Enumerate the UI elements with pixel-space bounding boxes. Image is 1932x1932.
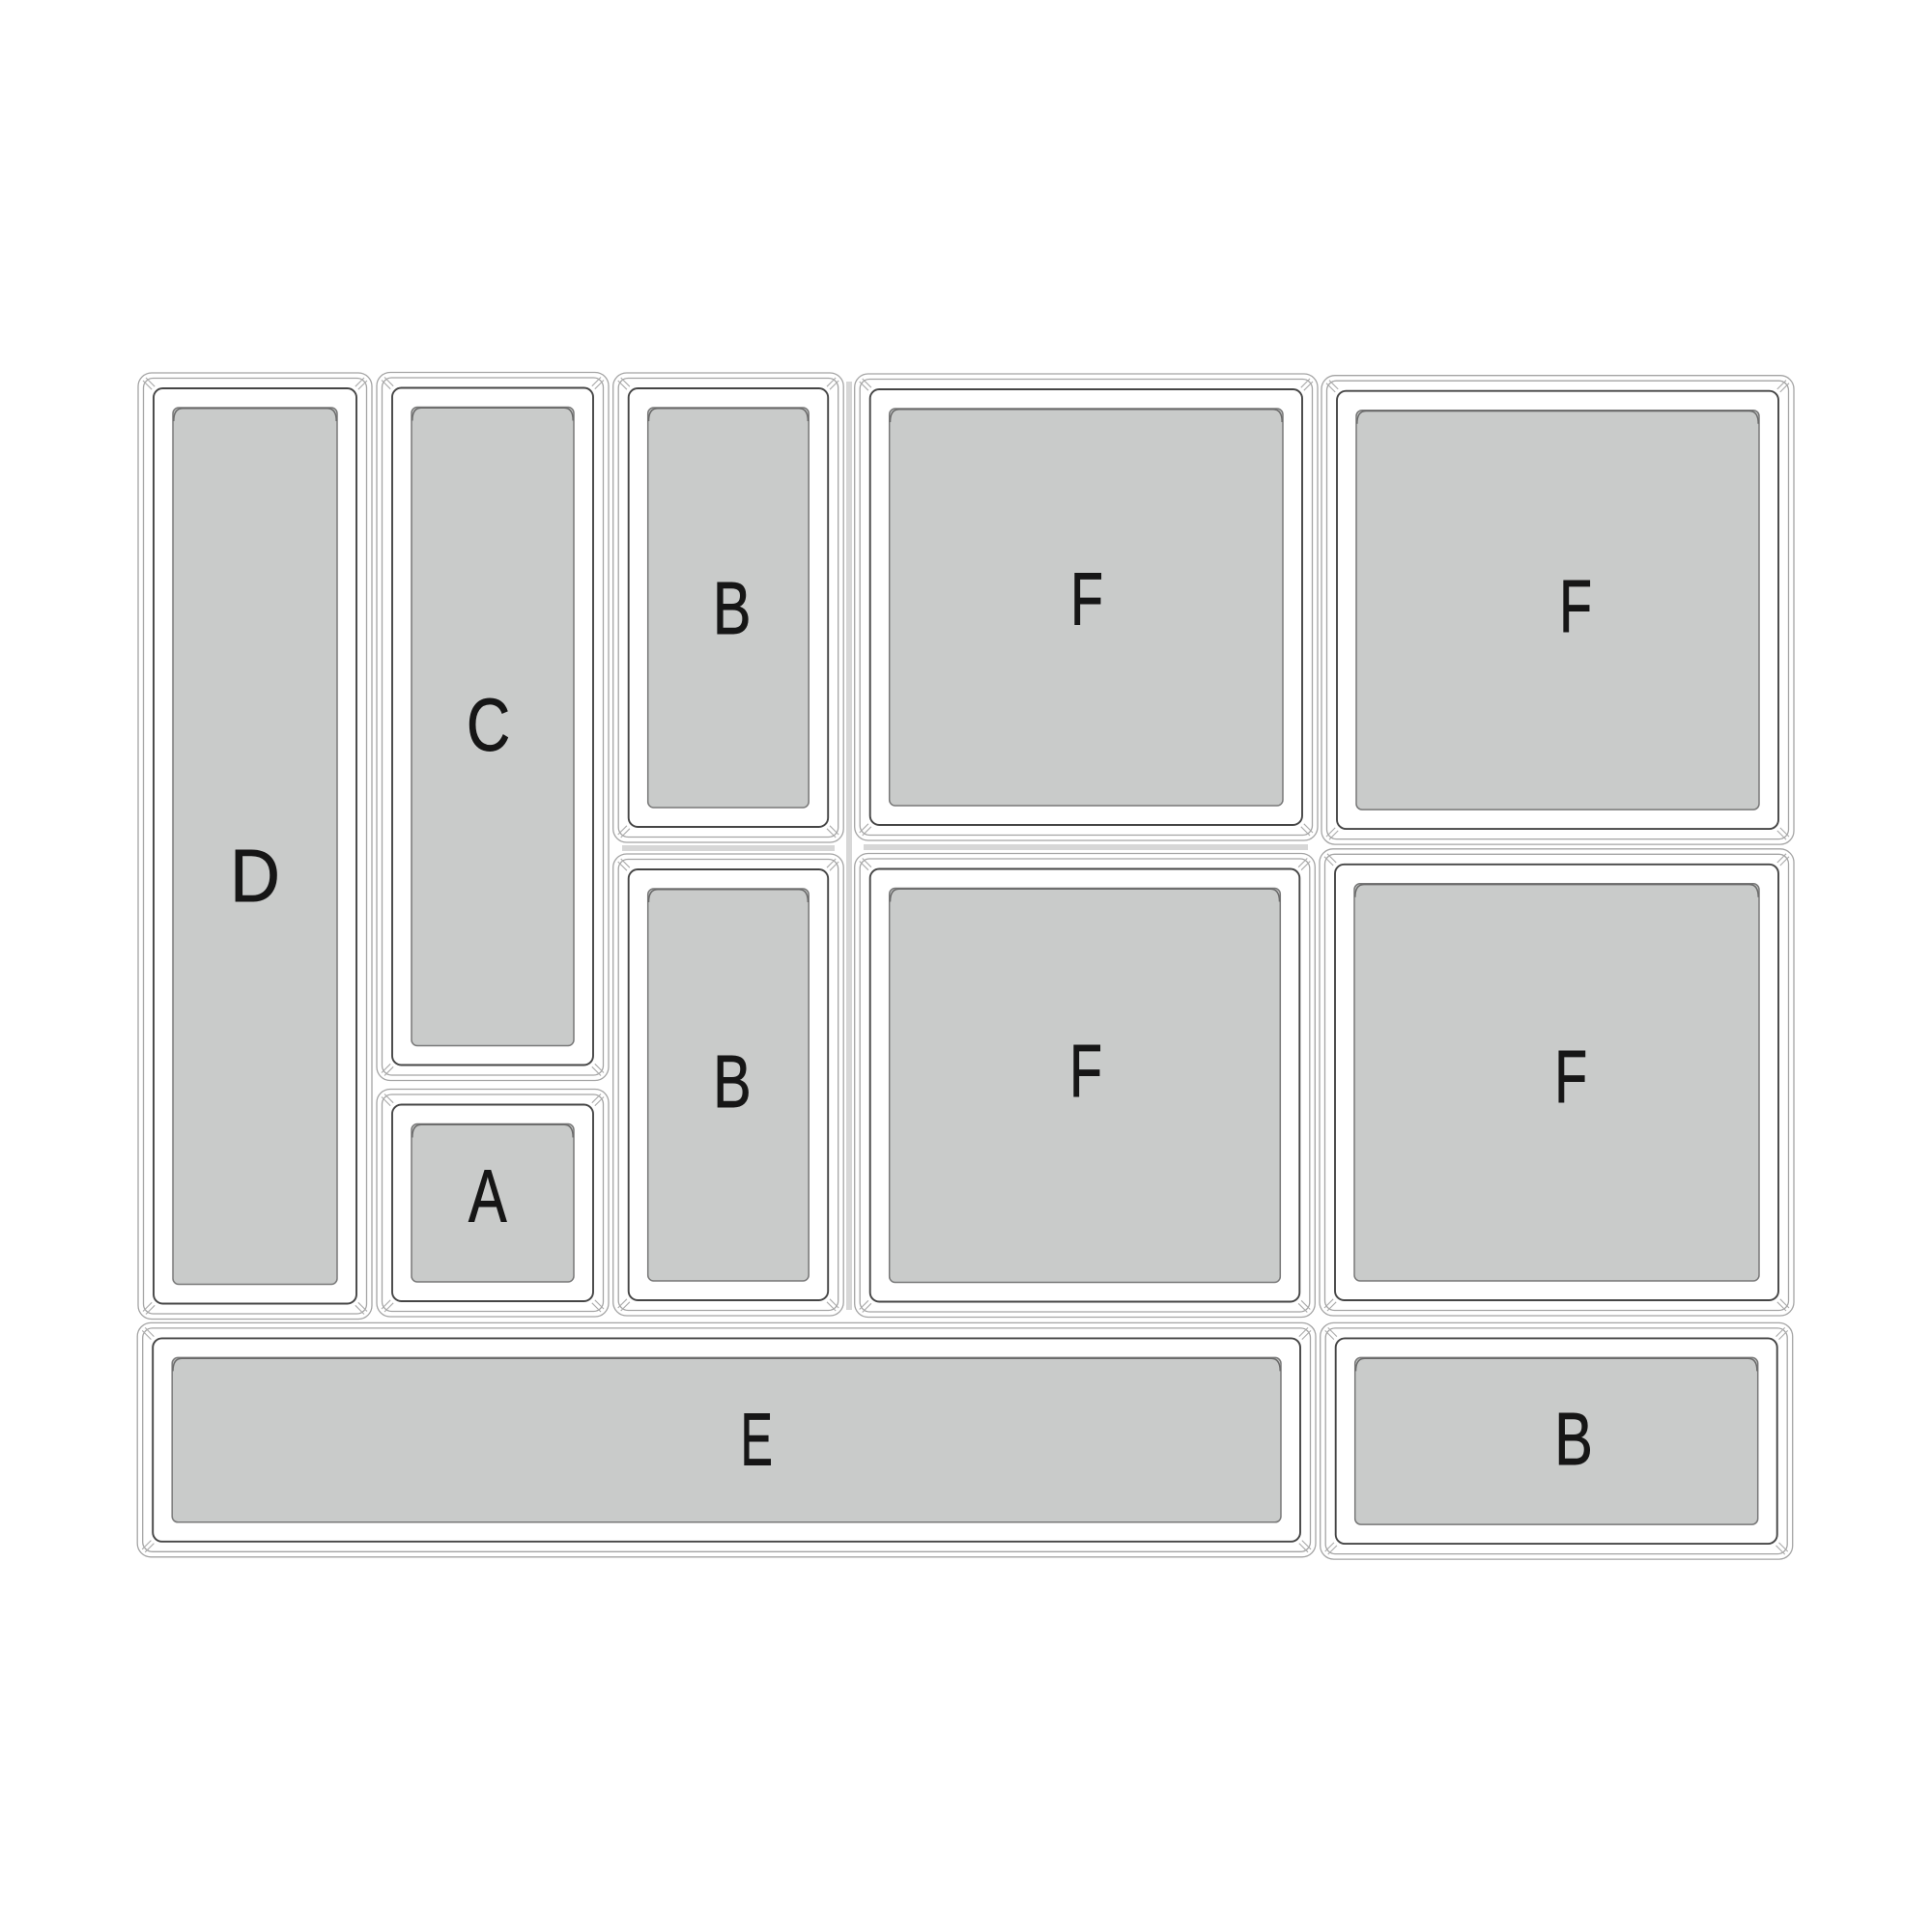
svg-text:F: F — [1069, 1030, 1102, 1113]
svg-text:E: E — [741, 1398, 773, 1482]
svg-text:B: B — [1554, 1398, 1593, 1481]
svg-text:F: F — [1559, 565, 1592, 648]
svg-text:C: C — [467, 684, 510, 767]
svg-text:A: A — [469, 1154, 507, 1237]
svg-text:B: B — [713, 1040, 752, 1123]
svg-text:F: F — [1070, 558, 1103, 641]
svg-text:B: B — [713, 567, 752, 650]
svg-text:D: D — [230, 835, 280, 918]
svg-text:F: F — [1554, 1036, 1587, 1119]
